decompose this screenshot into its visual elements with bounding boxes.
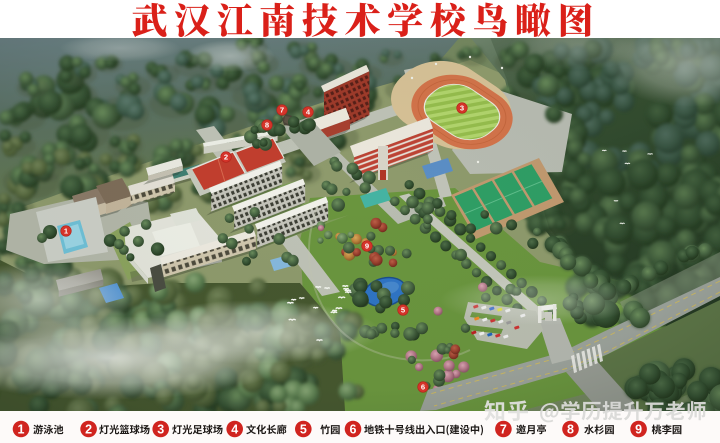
svg-text:3: 3 [460, 104, 464, 113]
svg-text:8: 8 [567, 422, 574, 436]
svg-text:7: 7 [500, 422, 507, 436]
svg-text:2: 2 [85, 422, 92, 436]
svg-text:8: 8 [265, 121, 269, 130]
svg-text:5: 5 [300, 422, 307, 436]
svg-text:4: 4 [231, 422, 238, 436]
svg-text:9: 9 [365, 242, 369, 251]
svg-text:6: 6 [421, 383, 425, 392]
svg-text:3: 3 [157, 422, 164, 436]
svg-text:9: 9 [635, 422, 642, 436]
svg-text:1: 1 [18, 422, 25, 436]
svg-text:2: 2 [224, 153, 228, 162]
svg-text:7: 7 [280, 106, 284, 115]
svg-text:6: 6 [350, 422, 357, 436]
